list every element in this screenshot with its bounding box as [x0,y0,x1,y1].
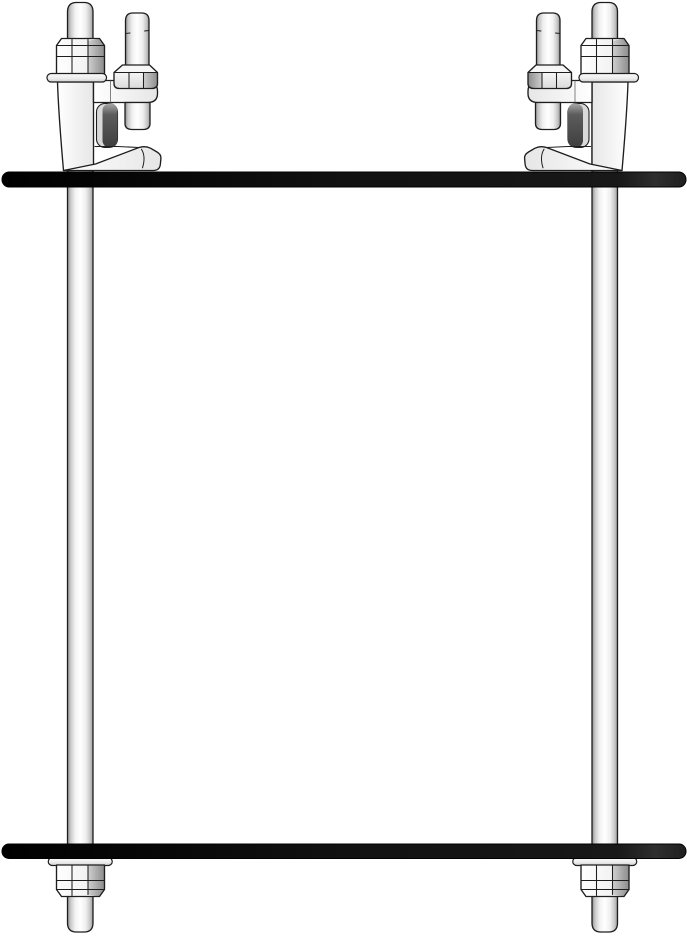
beam-clamp-assembly-diagram [0,0,687,937]
drawing-canvas [0,0,687,937]
top-flange-bar [2,172,686,187]
bottom-support-bar [2,844,686,859]
